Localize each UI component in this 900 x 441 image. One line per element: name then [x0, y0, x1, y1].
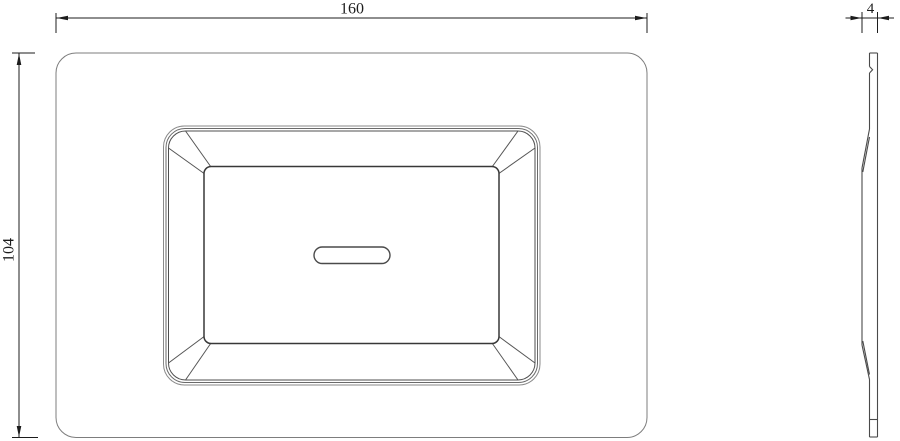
bevel-edge-tr-lower	[499, 148, 535, 174]
rim-line-outer	[164, 126, 541, 385]
dimension-height: 104	[1, 53, 39, 438]
dim-thickness-arrow-left	[851, 16, 862, 21]
bevel-edge-br-lower	[492, 343, 518, 380]
side-profile-bevel-upper-outer	[862, 129, 870, 168]
dim-thickness-arrow-right	[878, 16, 889, 21]
side-profile-bevel-lower-outer	[862, 345, 870, 380]
bevel-edge-bl-lower	[186, 343, 212, 380]
button-slot	[314, 247, 390, 264]
front-view	[56, 53, 647, 438]
recess-floor	[204, 167, 499, 344]
bevel-edge-bl-upper	[169, 336, 205, 363]
dim-height-arrow-top	[17, 54, 22, 66]
recess-rim	[164, 126, 541, 385]
dim-width-arrow-right	[635, 16, 647, 21]
side-profile-bevel-lower-inner	[863, 341, 870, 375]
side-profile-clip-notch	[870, 67, 873, 74]
drawing-canvas: 160 104 4	[0, 0, 900, 441]
bevel-edge-tl-upper	[186, 131, 212, 167]
dim-thickness-value: 4	[867, 1, 875, 17]
dim-width-arrow-left	[57, 16, 69, 21]
side-view	[862, 53, 878, 437]
bevel-edge-br-upper	[499, 336, 535, 363]
dim-height-arrow-bottom	[17, 426, 22, 437]
side-profile-bevel-upper-inner	[863, 137, 870, 172]
bevel-edge-tl-lower	[169, 148, 205, 174]
dimension-thickness: 4	[846, 1, 895, 33]
dim-width-value: 160	[340, 1, 364, 18]
dim-height-value: 104	[1, 238, 18, 262]
recess-bevel-edges	[169, 131, 536, 380]
technical-drawing-svg: 160 104 4	[0, 0, 900, 441]
dimension-width: 160	[56, 1, 647, 34]
rim-line-inner	[169, 131, 536, 380]
bevel-edge-tr-upper	[492, 131, 518, 167]
